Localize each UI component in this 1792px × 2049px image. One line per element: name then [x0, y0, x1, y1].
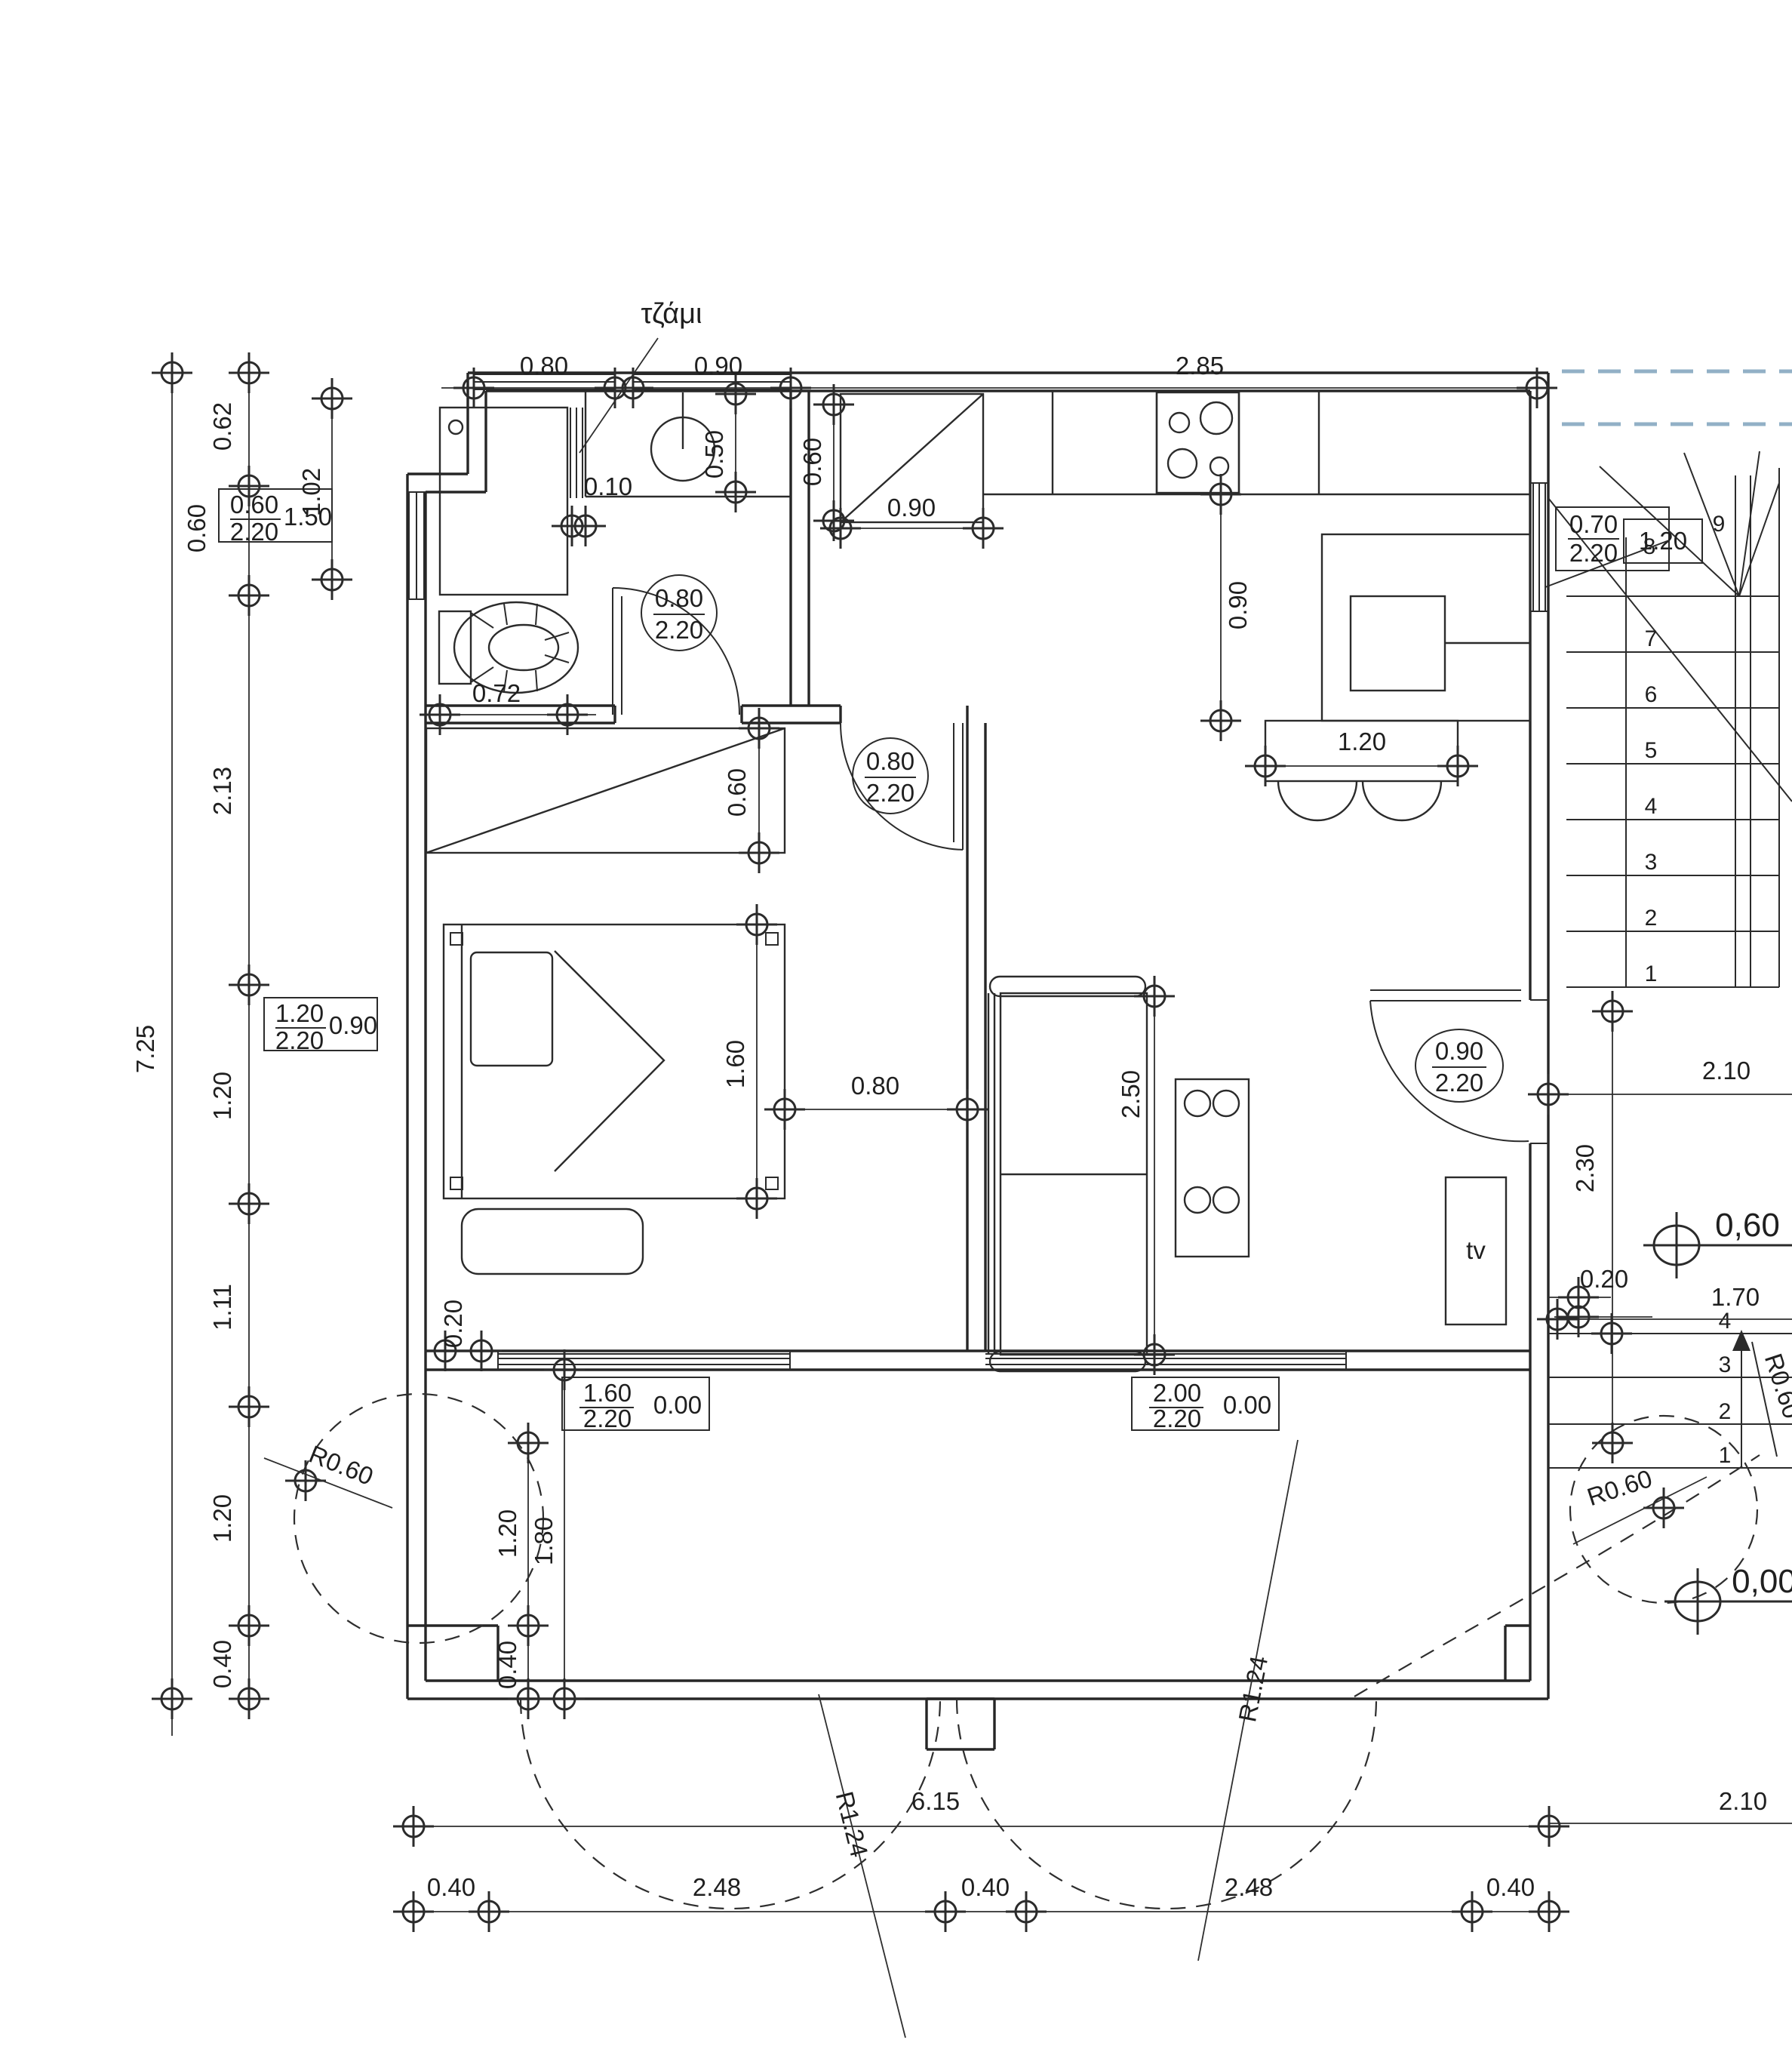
dim-060-pantry: 0.60 [798, 438, 826, 486]
level-060-icon: 0,60 [1643, 1207, 1792, 1278]
dim-040-b2: 0.40 [961, 1873, 1010, 1901]
dim-020-right: 0.20 [1580, 1265, 1628, 1293]
dim-615: 6.15 [911, 1787, 960, 1815]
dim-left-120a: 1.20 [208, 1072, 236, 1120]
level-000-label: 0,00 [1732, 1563, 1792, 1600]
dim-248-b: 2.48 [1225, 1873, 1273, 1901]
floor-plan-canvas: tv 1 2 3 4 5 6 7 8 9 [0, 0, 1792, 2049]
radius-r060-right: R0.60 [1584, 1464, 1655, 1511]
walls [407, 373, 1779, 1749]
kitchen-counter [983, 391, 1530, 494]
tag-window-veranda1: 1.60 2.20 0.00 [562, 1377, 709, 1432]
dim-040-b3: 0.40 [1486, 1873, 1535, 1901]
dim-top-090: 0.90 [694, 352, 742, 380]
dim-090-kitchen: 0.90 [1224, 581, 1252, 629]
dim-090-pantry: 0.90 [887, 494, 936, 521]
doors [613, 588, 1529, 1141]
tag-door-bath: 0.80 2.20 [641, 575, 717, 651]
svg-text:0.70: 0.70 [1569, 510, 1618, 538]
level-060-label: 0,60 [1715, 1207, 1780, 1244]
stool-icon [1278, 781, 1357, 820]
radius-r124-left: R1.24 [831, 1789, 874, 1860]
dim-248-a: 2.48 [693, 1873, 741, 1901]
stair-step-6: 6 [1645, 682, 1658, 707]
tv-label: tv [1466, 1236, 1486, 1264]
r124-arc-right [957, 1699, 1376, 1909]
stair-step-3: 3 [1645, 850, 1658, 875]
svg-text:2.20: 2.20 [275, 1026, 324, 1054]
r124-leader-left [819, 1694, 905, 2038]
glass-screen [570, 408, 582, 498]
dim-010: 0.10 [584, 472, 632, 500]
burner-icon [1210, 457, 1228, 475]
burner-icon [1170, 413, 1189, 432]
glass-note-label: τζάμι [641, 298, 702, 330]
svg-text:2.00: 2.00 [1153, 1379, 1201, 1407]
radius-r124-right: R1.24 [1233, 1654, 1273, 1724]
tag-door-stair: 0.70 2.20 1.20 [1545, 507, 1702, 587]
dim-left-213: 2.13 [208, 767, 236, 815]
bed-bench [462, 1209, 643, 1274]
stool-icon [1363, 781, 1441, 820]
dim-left-120b: 1.20 [208, 1494, 236, 1543]
sofa [988, 977, 1147, 1371]
dim-total-725: 7.25 [131, 1025, 159, 1073]
dim-210-bottom: 2.10 [1719, 1787, 1767, 1815]
dim-102: 1.02 [297, 468, 325, 516]
stove [1157, 392, 1239, 493]
burner-icon [1200, 402, 1232, 434]
dim-180-veranda: 1.80 [530, 1517, 558, 1565]
dim-250-sofa: 2.50 [1117, 1070, 1145, 1118]
stair-step-5: 5 [1645, 738, 1658, 763]
stair-width-label: 1.20 [1639, 527, 1687, 555]
stair-step-2: 2 [1645, 906, 1658, 931]
svg-text:0.00: 0.00 [653, 1391, 702, 1419]
glass-leader [579, 338, 658, 453]
dim-left-060: 0.60 [183, 504, 211, 552]
shower-cabin [440, 408, 567, 595]
svg-text:0.80: 0.80 [866, 747, 914, 775]
floor-plan-page: tv 1 2 3 4 5 6 7 8 9 [0, 0, 1792, 2049]
tag-window-bedroom: 1.20 2.20 0.90 [264, 998, 377, 1054]
stair-step-1: 1 [1645, 961, 1658, 986]
level-000-icon: 0,00 [1664, 1563, 1792, 1635]
dim-top-080: 0.80 [520, 352, 568, 380]
entry-step-4: 4 [1719, 1309, 1732, 1334]
stair-step-7: 7 [1645, 626, 1658, 651]
svg-text:1.20: 1.20 [275, 999, 324, 1027]
dim-170: 1.70 [1711, 1283, 1760, 1311]
entry-step-1: 1 [1719, 1443, 1732, 1468]
opening-tags: 0.60 2.20 1.50 1.20 2.20 0.90 0.80 2.20 … [219, 489, 1702, 1432]
svg-text:0.90: 0.90 [1435, 1037, 1483, 1065]
dim-left-111: 1.11 [208, 1284, 236, 1331]
chair-icon [1185, 1187, 1210, 1213]
svg-text:2.20: 2.20 [230, 518, 278, 546]
dim-120-bar: 1.20 [1338, 728, 1386, 755]
stair-step-4: 4 [1645, 794, 1658, 819]
svg-text:0.60: 0.60 [230, 491, 278, 518]
tag-door-entry: 0.90 2.20 [1415, 1029, 1503, 1102]
chair-icon [1213, 1091, 1239, 1116]
entry-staircase: 4 3 2 1 R0.60 [1548, 1309, 1792, 1468]
svg-text:2.20: 2.20 [1435, 1069, 1483, 1097]
dim-160-bed: 1.60 [721, 1040, 749, 1088]
tag-window-veranda2: 2.00 2.20 0.00 [1132, 1377, 1279, 1432]
tag-door-bedroom: 0.80 2.20 [853, 738, 928, 814]
entry-step-2: 2 [1719, 1399, 1732, 1424]
dim-060-wardrobe: 0.60 [723, 768, 751, 817]
svg-text:2.20: 2.20 [1153, 1404, 1201, 1432]
burner-icon [1168, 449, 1197, 478]
tv-unit: tv [1446, 1177, 1506, 1324]
svg-text:1.60: 1.60 [583, 1379, 632, 1407]
dim-left-062: 0.62 [208, 402, 236, 451]
dim-left-040: 0.40 [208, 1640, 236, 1688]
dim-072-toilet: 0.72 [472, 679, 521, 707]
dim-050: 0.50 [700, 430, 728, 478]
svg-text:2.20: 2.20 [583, 1404, 632, 1432]
dim-040-veranda: 0.40 [493, 1641, 521, 1689]
dim-230: 2.30 [1571, 1144, 1599, 1192]
dim-210-mid: 2.10 [1702, 1057, 1751, 1084]
dim-020-bedroom: 0.20 [439, 1300, 467, 1348]
dimension-labels: τζάμι 0.80 0.90 2.85 0.62 0.60 2.13 1.20… [131, 298, 1767, 1901]
stair-step-9: 9 [1713, 512, 1726, 537]
chair-icon [1185, 1091, 1210, 1116]
svg-text:0.80: 0.80 [655, 584, 703, 612]
svg-text:2.20: 2.20 [866, 779, 914, 807]
dim-120-veranda: 1.20 [493, 1509, 521, 1558]
dining-table [1176, 1079, 1249, 1257]
entry-door [1370, 990, 1529, 1141]
chair-icon [1213, 1187, 1239, 1213]
dim-040-b1: 0.40 [427, 1873, 475, 1901]
entry-step-3: 3 [1719, 1352, 1732, 1377]
svg-text:0.00: 0.00 [1223, 1391, 1271, 1419]
dim-top-285: 2.85 [1176, 352, 1224, 380]
svg-text:2.20: 2.20 [655, 616, 703, 644]
stair-radius-label: R0.60 [1760, 1350, 1792, 1422]
fridge-cabinet [1322, 534, 1530, 721]
svg-text:0.90: 0.90 [329, 1011, 377, 1039]
shower-drain-icon [449, 420, 463, 434]
dim-080-bed: 0.80 [851, 1072, 899, 1100]
